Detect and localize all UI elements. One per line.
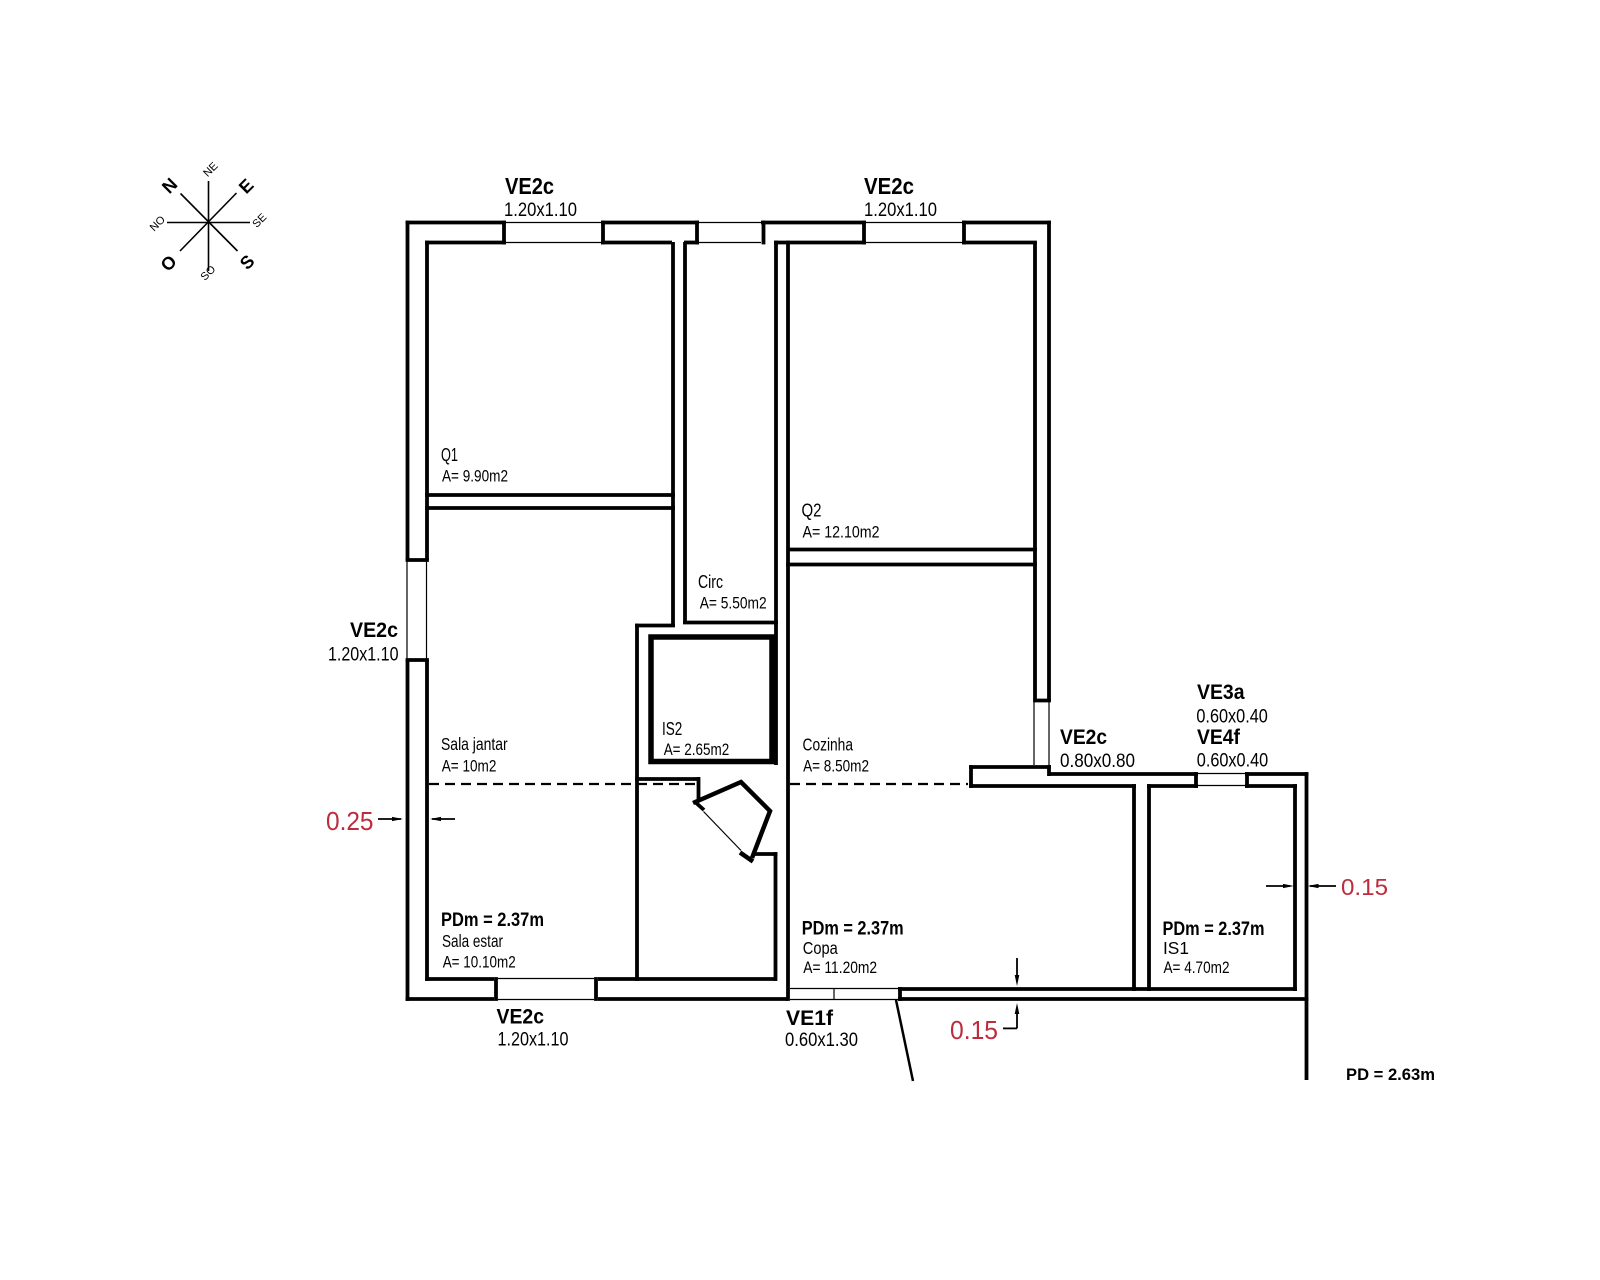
svg-text:Sala jantar: Sala jantar [441,734,508,754]
svg-text:PDm = 2.37m: PDm = 2.37m [1163,918,1265,940]
svg-text:0.60x1.30: 0.60x1.30 [785,1030,858,1051]
svg-text:A= 10.10m2: A= 10.10m2 [443,952,516,971]
svg-text:VE1f: VE1f [786,1007,834,1030]
svg-text:IS2: IS2 [662,719,682,739]
svg-text:0.60x0.40: 0.60x0.40 [1196,707,1267,728]
svg-text:1.20x1.10: 1.20x1.10 [328,645,399,666]
svg-text:1.20x1.10: 1.20x1.10 [498,1030,569,1051]
svg-text:VE2c: VE2c [497,1006,545,1029]
svg-text:Copa: Copa [803,938,838,958]
svg-text:VE4f: VE4f [1197,726,1241,749]
svg-text:0.80x0.80: 0.80x0.80 [1060,751,1135,772]
svg-text:A= 10m2: A= 10m2 [442,757,497,776]
svg-text:A= 9.90m2: A= 9.90m2 [442,467,508,486]
svg-text:A= 4.70m2: A= 4.70m2 [1164,958,1230,977]
svg-text:1.20x1.10: 1.20x1.10 [504,200,577,221]
svg-text:A= 8.50m2: A= 8.50m2 [803,757,869,776]
svg-text:Cozinha: Cozinha [803,734,854,754]
svg-text:A= 5.50m2: A= 5.50m2 [700,593,767,612]
svg-text:Sala estar: Sala estar [442,931,503,951]
svg-text:IS1: IS1 [1163,938,1189,958]
svg-text:0.15: 0.15 [1341,874,1388,900]
svg-text:Q1: Q1 [441,445,458,465]
svg-text:PDm = 2.37m: PDm = 2.37m [802,918,904,940]
svg-text:0.25: 0.25 [326,806,374,836]
svg-text:VE2c: VE2c [864,173,914,199]
svg-text:A= 2.65m2: A= 2.65m2 [664,740,730,759]
svg-text:A= 12.10m2: A= 12.10m2 [803,523,880,542]
svg-text:PDm = 2.37m: PDm = 2.37m [441,909,544,931]
svg-text:1.20x1.10: 1.20x1.10 [864,200,937,221]
svg-text:Q2: Q2 [802,501,822,521]
svg-text:0.60x0.40: 0.60x0.40 [1197,750,1268,771]
svg-text:VE3a: VE3a [1197,681,1245,704]
svg-text:A= 11.20m2: A= 11.20m2 [803,958,877,977]
svg-text:VE2c: VE2c [1060,726,1107,749]
svg-text:VE2c: VE2c [350,619,398,642]
svg-text:PD = 2.63m: PD = 2.63m [1346,1065,1435,1084]
svg-text:VE2c: VE2c [505,173,554,199]
svg-text:0.15: 0.15 [950,1015,998,1045]
svg-text:Circ: Circ [698,572,723,592]
